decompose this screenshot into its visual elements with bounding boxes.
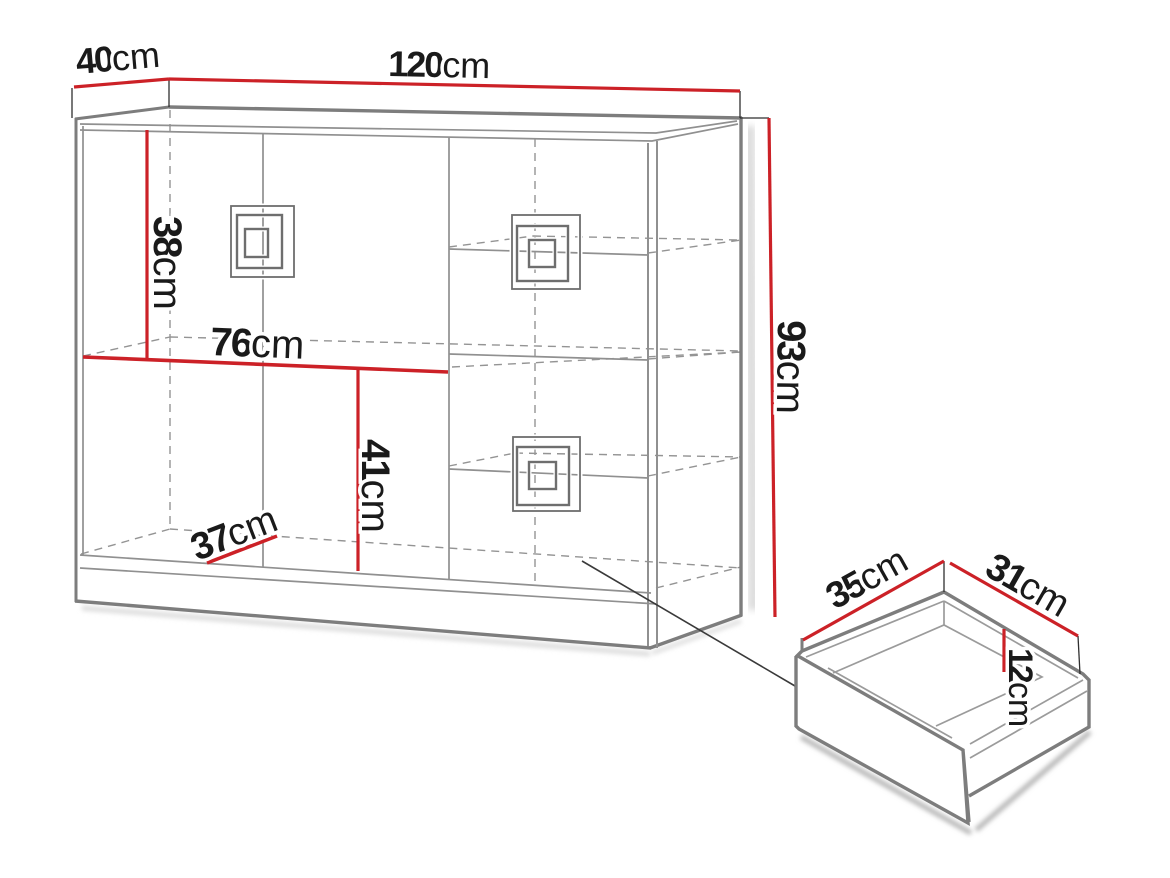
svg-text:40cm: 40cm — [74, 34, 161, 82]
svg-text:41cm: 41cm — [353, 439, 397, 533]
svg-text:38cm: 38cm — [145, 216, 189, 310]
svg-text:120cm: 120cm — [388, 43, 491, 86]
svg-text:37cm: 37cm — [185, 498, 283, 569]
svg-text:12cm: 12cm — [1001, 648, 1039, 727]
svg-text:76cm: 76cm — [210, 320, 306, 368]
svg-text:31cm: 31cm — [979, 545, 1077, 626]
svg-text:93cm: 93cm — [768, 320, 813, 414]
